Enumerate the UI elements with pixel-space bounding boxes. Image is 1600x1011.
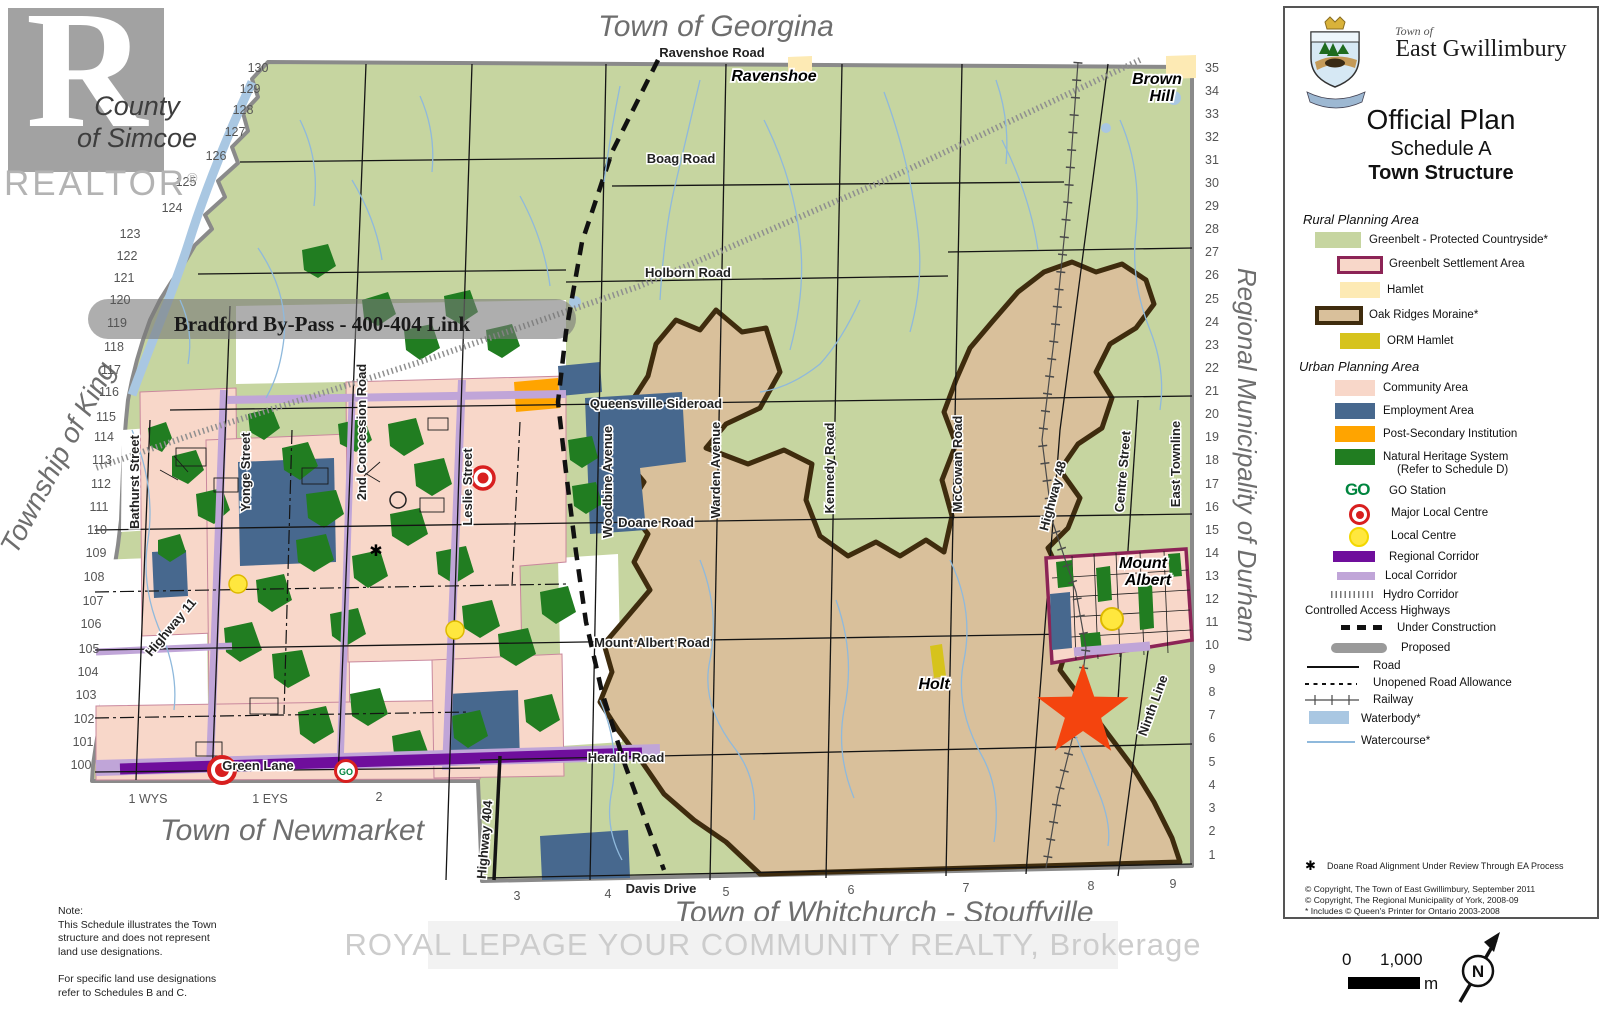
- local-corridor-legend-icon: [1337, 572, 1375, 580]
- edge-number-left: 104: [78, 665, 99, 679]
- map-label: Hill: [1150, 88, 1175, 105]
- community-area-swatch: [1335, 380, 1375, 396]
- north-letter: N: [1472, 962, 1484, 981]
- local-centre-icon: [446, 621, 464, 639]
- map-label: Doane Road: [618, 515, 694, 530]
- edge-number-right: 3: [1209, 801, 1216, 815]
- map-label: Ravenshoe Road: [659, 45, 765, 60]
- svg-text:GO: GO: [339, 767, 353, 777]
- edge-number-right: 19: [1205, 430, 1219, 444]
- edge-number-left: 102: [74, 712, 95, 726]
- title-town-name: East Gwillimbury: [1371, 36, 1591, 63]
- legend-label: Regional Corridor: [1389, 551, 1479, 563]
- proposed-legend-icon: [1331, 643, 1387, 653]
- map-label: Leslie Street: [460, 448, 475, 526]
- edge-number-right: 31: [1205, 153, 1219, 167]
- edge-number-left: 109: [86, 546, 107, 560]
- edge-number-right: 16: [1205, 500, 1219, 514]
- edge-number-right: 29: [1205, 199, 1219, 213]
- edge-number-right: 21: [1205, 384, 1219, 398]
- edge-number-bottom: 7: [963, 881, 970, 895]
- legend-label: Post-Secondary Institution: [1383, 428, 1517, 440]
- edge-number-left: 105: [79, 642, 100, 656]
- map-label: Woodbine Avenue: [600, 426, 615, 538]
- edge-number-right: 33: [1205, 107, 1219, 121]
- schedule-note: Note: This Schedule illustrates the Town…: [58, 905, 217, 1000]
- edge-number-left: 127: [225, 125, 246, 139]
- edge-number-left: 119: [107, 316, 127, 330]
- greenbelt-settlement-swatch: [1337, 256, 1383, 274]
- watercourse-legend-icon: [1307, 741, 1355, 743]
- edge-number-right: 23: [1205, 338, 1219, 352]
- rural-header: Rural Planning Area: [1303, 212, 1419, 227]
- map-label: Mount: [1119, 555, 1168, 572]
- edge-number-right: 25: [1205, 292, 1219, 306]
- edge-number-right: 7: [1209, 708, 1216, 722]
- legend-label: Unopened Road Allowance: [1373, 677, 1512, 689]
- waterbody-swatch: [1309, 711, 1349, 724]
- edge-number-right: 2: [1209, 824, 1216, 838]
- footnote-asterisk: ✱: [1305, 858, 1316, 874]
- realtor-watermark: REALTOR®: [4, 164, 200, 204]
- edge-number-right: 1: [1209, 848, 1216, 862]
- legend-label: Local Corridor: [1385, 570, 1457, 582]
- map-label: East Townline: [1168, 421, 1183, 507]
- local-centre-legend-icon: [1349, 527, 1369, 547]
- plan-title: Official Plan: [1285, 104, 1597, 136]
- edge-number-left: 116: [99, 385, 119, 399]
- map-page: GO ✱ Town of GeorginaTownship of KingReg…: [0, 0, 1600, 1011]
- edge-number-left: 106: [81, 617, 102, 631]
- edge-number-left: 100: [71, 758, 92, 772]
- edge-number-left: 101: [73, 735, 94, 749]
- railway-legend-icon: [1303, 694, 1361, 706]
- legend-label: Proposed: [1401, 642, 1450, 654]
- legend-panel: Town of East Gwillimbury Official Plan S…: [1283, 6, 1599, 919]
- brokerage-watermark: ROYAL LEPAGE YOUR COMMUNITY REALTY, Brok…: [428, 921, 1118, 969]
- controlled-access-header: Controlled Access Highways: [1305, 605, 1450, 617]
- road-legend-icon: [1307, 666, 1359, 668]
- edge-number-right: 9: [1209, 662, 1216, 676]
- town-crest: [1297, 16, 1375, 116]
- edge-number-right: 32: [1205, 130, 1219, 144]
- legend-label: GO Station: [1389, 485, 1446, 497]
- north-arrow: N: [1444, 924, 1514, 1010]
- hydro-corridor-legend-icon: [1331, 591, 1373, 598]
- legend-label: Railway: [1373, 694, 1413, 706]
- map-label: Warden Avenue: [708, 422, 723, 519]
- edge-number-left: 129: [240, 82, 261, 96]
- map-label: Davis Drive: [626, 881, 697, 896]
- edge-number-right: 26: [1205, 268, 1219, 282]
- edge-number-right: 20: [1205, 407, 1219, 421]
- edge-number-right: 34: [1205, 84, 1219, 98]
- edge-number-left: 103: [76, 688, 97, 702]
- legend-label: Oak Ridges Moraine*: [1369, 309, 1478, 321]
- edge-number-left: 122: [117, 249, 138, 263]
- map-label: 2nd Concession Road: [354, 364, 369, 501]
- edge-number-left: 111: [89, 500, 108, 514]
- edge-number-left: 115: [96, 410, 116, 424]
- map-label: Brown: [1132, 71, 1182, 88]
- map-label: Ravenshoe: [731, 68, 816, 85]
- edge-number-right: 17: [1205, 477, 1219, 491]
- legend-label: Major Local Centre: [1391, 507, 1488, 519]
- hamlet-swatch: [1340, 282, 1380, 298]
- footnote-text: Doane Road Alignment Under Review Throug…: [1327, 861, 1563, 871]
- edge-number-left: 123: [120, 227, 141, 241]
- orm-hamlet-swatch: [1340, 333, 1380, 349]
- edge-number-bottom: 5: [723, 885, 730, 899]
- local-centre-icon: [1101, 608, 1123, 630]
- edge-number-bottom: 2: [376, 790, 383, 804]
- legend-label: Natural Heritage System: [1383, 451, 1508, 463]
- edge-number-right: 11: [1206, 615, 1219, 629]
- edge-number-left: 114: [94, 430, 114, 444]
- post-secondary-swatch: [1335, 426, 1375, 442]
- legend-label: Road: [1373, 660, 1401, 672]
- map-label: Mount Albert Road: [594, 635, 710, 650]
- copyright-line: © Copyright, The Town of East Gwillimbur…: [1305, 884, 1535, 895]
- edge-number-right: 4: [1209, 778, 1216, 792]
- go-station-legend-icon: GO: [1345, 480, 1369, 500]
- map-label: Town of Newmarket: [160, 814, 426, 847]
- edge-number-left: 130: [248, 61, 269, 75]
- map-label: Bradford By-Pass - 400-404 Link: [174, 312, 471, 336]
- edge-number-right: 14: [1205, 546, 1219, 560]
- edge-number-right: 13: [1205, 569, 1219, 583]
- legend-label: ORM Hamlet: [1387, 335, 1453, 347]
- edge-number-right: 24: [1205, 315, 1219, 329]
- unopened-road-legend-icon: [1305, 683, 1357, 685]
- edge-number-bottom: 4: [605, 887, 612, 901]
- map-label: Holt: [918, 676, 950, 693]
- urban-header: Urban Planning Area: [1299, 359, 1419, 374]
- edge-number-right: 6: [1209, 731, 1216, 745]
- edge-number-right: 15: [1205, 523, 1219, 537]
- map-label: Albert: [1124, 572, 1172, 589]
- edge-number-right: 10: [1205, 638, 1219, 652]
- scale-unit: m: [1424, 974, 1438, 994]
- copyright-line: * Includes © Queen's Printer for Ontario…: [1305, 906, 1500, 917]
- edge-number-bottom: 1 EYS: [252, 792, 287, 806]
- county-of-simcoe-label: County of Simcoe: [52, 90, 222, 155]
- edge-number-right: 30: [1205, 176, 1219, 190]
- doane-ea-asterisk: ✱: [369, 543, 382, 560]
- edge-number-bottom: 3: [514, 889, 521, 903]
- legend-label: Waterbody*: [1361, 713, 1421, 725]
- local-centre-icon: [229, 575, 247, 593]
- copyright-line: © Copyright, The Regional Municipality o…: [1305, 895, 1519, 906]
- greenbelt-swatch: [1315, 232, 1361, 248]
- natural-heritage-swatch: [1335, 449, 1375, 465]
- edge-number-left: 110: [87, 523, 107, 537]
- legend-label: Under Construction: [1397, 622, 1496, 634]
- map-label: Herald Road: [588, 750, 665, 765]
- oak-ridges-moraine-swatch: [1315, 306, 1363, 325]
- edge-number-left: 117: [101, 363, 121, 377]
- map-label: Green Lane: [222, 758, 294, 773]
- edge-number-left: 108: [84, 570, 105, 584]
- map-label: Kennedy Road: [822, 422, 837, 513]
- map-label: Holborn Road: [645, 265, 731, 280]
- edge-number-right: 22: [1205, 361, 1219, 375]
- regional-corridor-legend-icon: [1333, 551, 1375, 562]
- edge-number-bottom: 6: [848, 883, 855, 897]
- edge-number-right: 28: [1205, 222, 1219, 236]
- legend-label: Community Area: [1383, 382, 1468, 394]
- edge-number-right: 18: [1205, 453, 1219, 467]
- legend-label: Greenbelt - Protected Countryside*: [1369, 234, 1548, 246]
- edge-number-bottom: 1 WYS: [129, 792, 168, 806]
- major-local-centre-legend-icon: [1349, 504, 1370, 525]
- employment-area-swatch: [1335, 403, 1375, 419]
- legend-label: (Refer to Schedule D): [1397, 464, 1508, 476]
- edge-number-left: 118: [104, 340, 124, 354]
- edge-number-left: 107: [83, 594, 104, 608]
- legend-label: Watercourse*: [1361, 735, 1430, 747]
- map-label: McCowan Road: [950, 416, 965, 513]
- edge-number-right: 27: [1205, 245, 1219, 259]
- map-label: Bathurst Street: [127, 434, 142, 529]
- legend-label: Local Centre: [1391, 530, 1456, 542]
- edge-number-left: 128: [233, 103, 254, 117]
- edge-number-right: 5: [1209, 755, 1216, 769]
- under-construction-legend-icon: [1341, 625, 1389, 630]
- edge-number-right: 8: [1209, 685, 1216, 699]
- map-label: Regional Municipality of Durham: [1232, 268, 1262, 642]
- scale-bar: [1348, 977, 1420, 989]
- edge-number-left: 121: [114, 271, 135, 285]
- edge-number-bottom: 9: [1170, 877, 1177, 891]
- plan-schedule: Schedule A: [1285, 138, 1597, 161]
- scale-zero: 0: [1342, 950, 1351, 970]
- legend-label: Employment Area: [1383, 405, 1474, 417]
- map-label: Yonge Street: [238, 432, 253, 512]
- edge-number-right: 35: [1205, 61, 1219, 75]
- edge-number-left: 113: [92, 453, 112, 467]
- edge-number-right: 12: [1205, 592, 1219, 606]
- legend-label: Greenbelt Settlement Area: [1389, 258, 1525, 270]
- map-label: Boag Road: [647, 151, 716, 166]
- legend-label: Hydro Corridor: [1383, 589, 1458, 601]
- map-label: Queensville Sideroad: [590, 396, 722, 411]
- scale-distance: 1,000: [1380, 950, 1423, 970]
- edge-number-left: 120: [110, 293, 131, 307]
- plan-structure: Town Structure: [1285, 162, 1597, 185]
- edge-number-left: 112: [91, 477, 111, 491]
- legend-label: Hamlet: [1387, 284, 1423, 296]
- map-label: Town of Georgina: [598, 10, 834, 43]
- edge-number-bottom: 8: [1088, 879, 1095, 893]
